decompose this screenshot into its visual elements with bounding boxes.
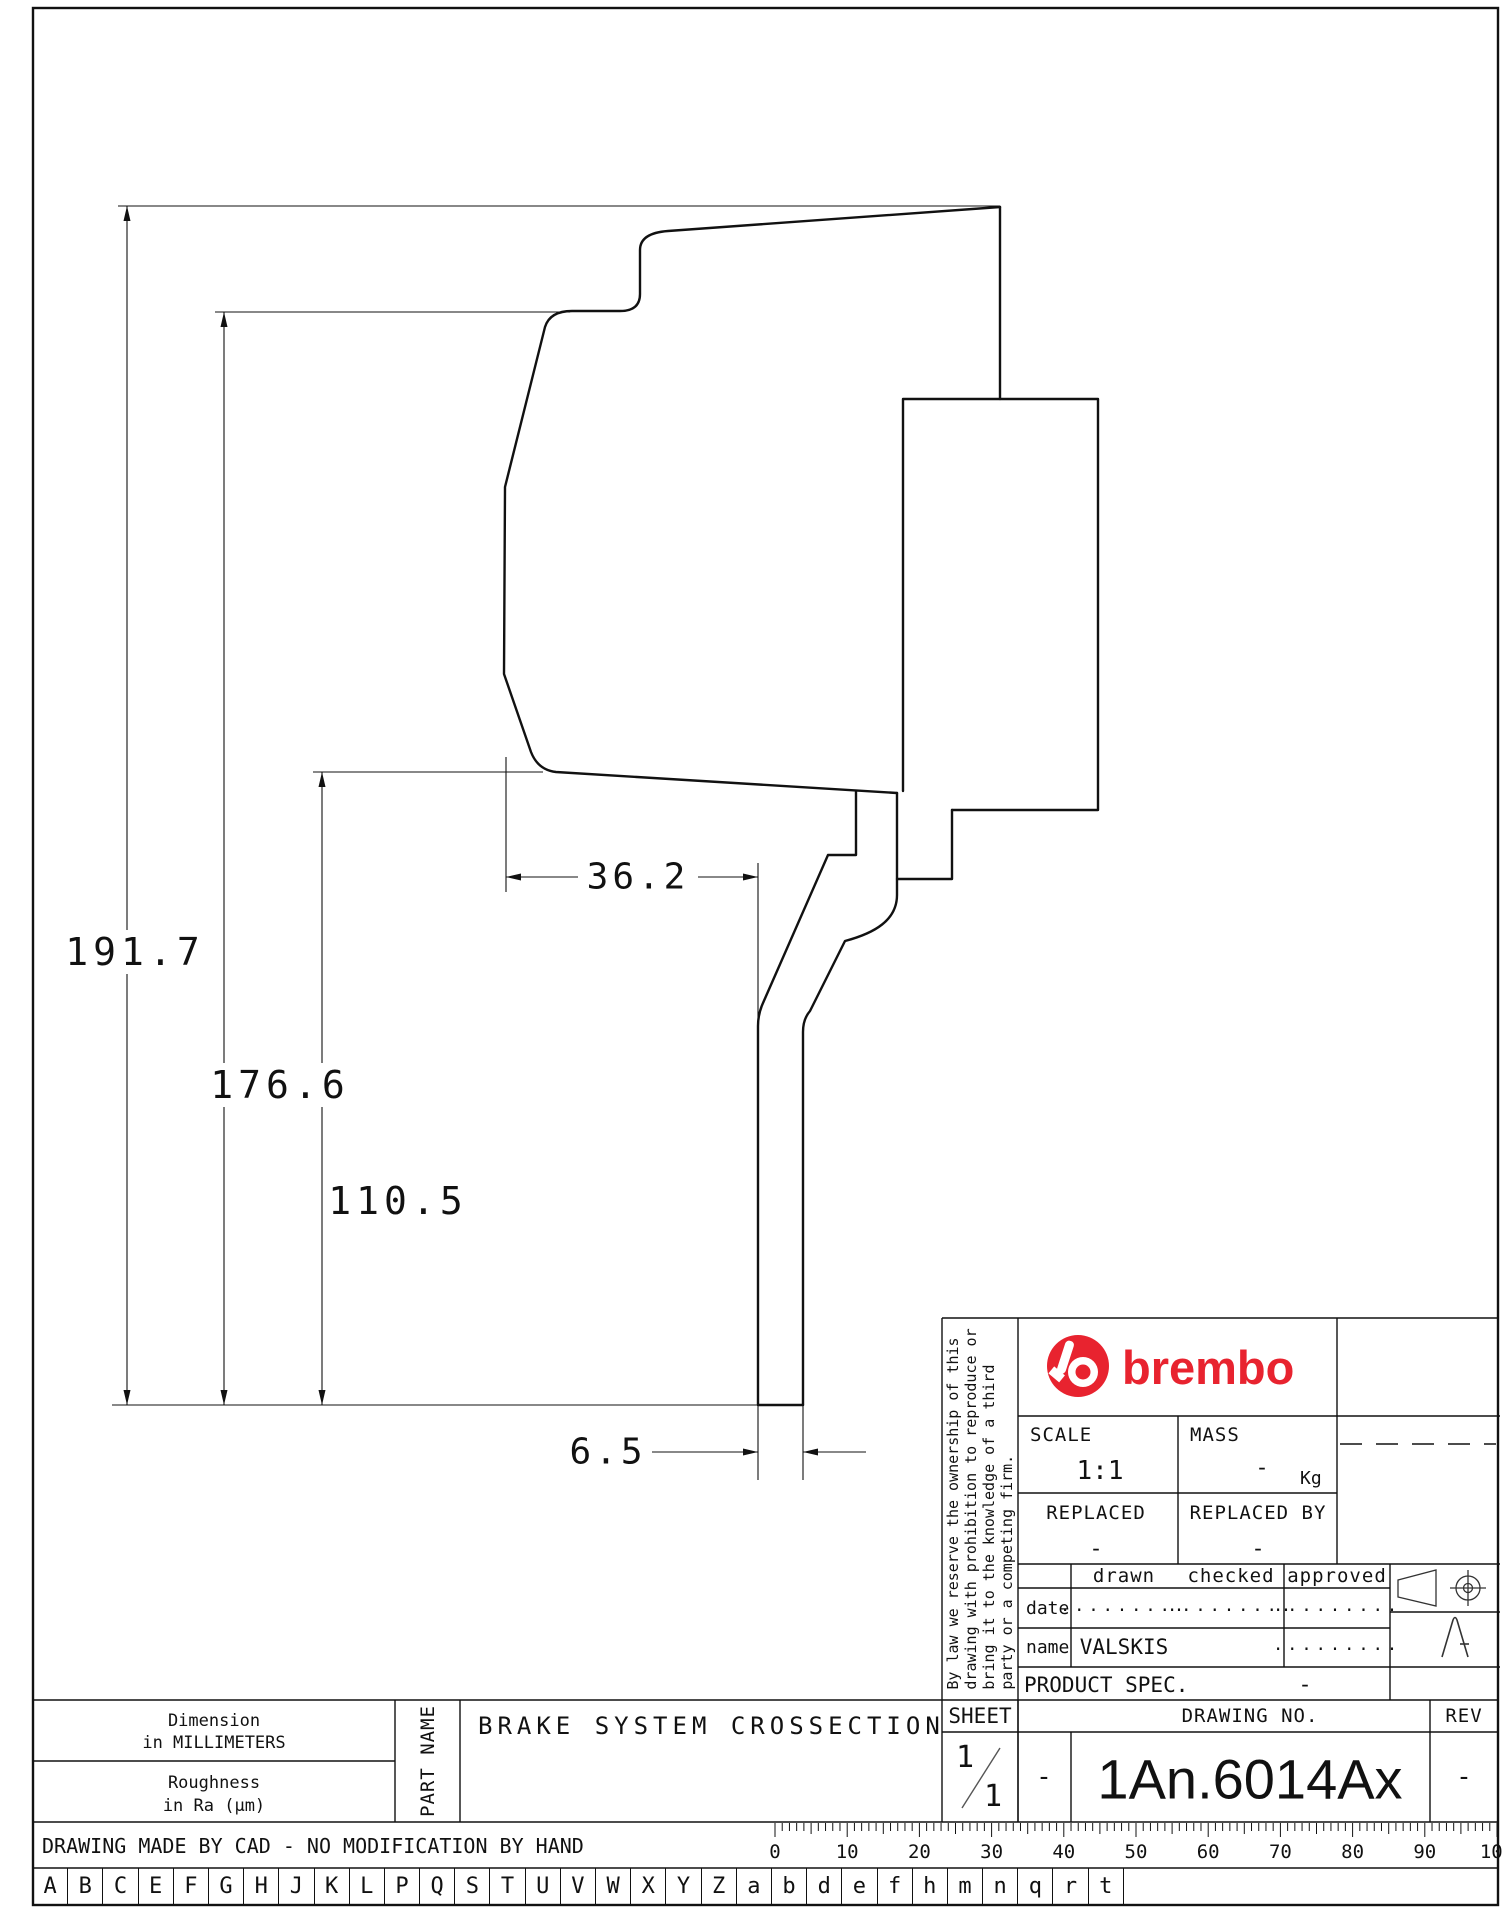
revision-letter-cell: e [842,1868,877,1905]
cad-note: DRAWING MADE BY CAD - NO MODIFICATION BY… [42,1834,584,1858]
drawing-sheet: 191.7 176.6 110.5 36.2 6.5 brembo SCALE … [0,0,1504,1920]
revision-letter-cell: m [948,1868,983,1905]
revision-letter-cell: h [913,1868,948,1905]
revision-letter-cell: Z [702,1868,737,1905]
sheet-number: 1 1 [948,1738,1012,1816]
name-approved-value: ......... [1273,1635,1401,1655]
revision-letter-cell: f [878,1868,913,1905]
revision-letter-cell: Q [420,1868,455,1905]
revision-letter-cell: Y [666,1868,701,1905]
ruler-number: 80 [1341,1841,1364,1863]
revision-letter-cell: b [772,1868,807,1905]
revision-letter-cell: X [631,1868,666,1905]
ruler-number: 60 [1197,1841,1220,1863]
revision-letter-cell: J [279,1868,314,1905]
ruler-number: 10 [836,1841,859,1863]
drawing-canvas [0,0,1504,1920]
replaced-by-value: - [1251,1537,1264,1562]
scale-label: SCALE [1030,1424,1092,1446]
dimension-annotations [112,206,1000,1480]
drawing-no-label: DRAWING NO. [1182,1705,1319,1727]
ruler-number: 90 [1413,1841,1436,1863]
legal-notice-line: drawing with prohibition to reproduce or [962,1328,980,1689]
rev-value: - [1456,1762,1472,1792]
mass-value: - [1255,1456,1268,1481]
revision-letter-cell: K [315,1868,350,1905]
dim-label-overall-height: 191.7 [61,930,208,974]
col-header-checked: checked [1187,1565,1274,1587]
revision-letter-cell: n [983,1868,1018,1905]
ruler-number: 100 [1480,1841,1504,1863]
revision-letter-cell: U [526,1868,561,1905]
revision-letter-cell: C [103,1868,138,1905]
ruler-number: 70 [1269,1841,1292,1863]
mass-unit: Kg [1300,1468,1322,1489]
projection-symbol [1398,1570,1486,1606]
col-header-drawn: drawn [1093,1565,1155,1587]
part-name-label: PART NAME [417,1705,439,1817]
part-title: BRAKE SYSTEM CROSSECTION [478,1712,945,1740]
replaced-label: REPLACED [1046,1502,1146,1524]
revision-letter-cell: W [596,1868,631,1905]
revision-letter-cell: A [33,1868,68,1905]
date-approved-value: ......... [1273,1596,1401,1616]
dim-label-bell-width: 36.2 [584,857,693,898]
product-spec-label: PRODUCT SPEC. [1024,1673,1188,1697]
ruler-ticks [775,1823,1497,1837]
roughness-note-line1: Roughness [168,1773,260,1793]
revision-letter-cell: L [350,1868,385,1905]
dim-label-shaft-thickness: 6.5 [566,1432,649,1473]
revision-letter-cell: a [737,1868,772,1905]
revision-letter-cell: d [807,1868,842,1905]
revision-letter-cell: r [1053,1868,1088,1905]
ruler-number: 0 [769,1841,780,1863]
roughness-note-line2: in Ra (µm) [163,1796,265,1816]
legal-notice-line: By law we reserve the ownership of this [944,1328,962,1689]
dim-label-mid-height: 176.6 [206,1063,353,1107]
name-drawn-value: VALSKIS [1080,1635,1169,1659]
datum-a-symbol [1442,1618,1469,1658]
dimension-note-line1: Dimension [168,1711,260,1731]
rev-label: REV [1445,1705,1482,1727]
revision-letter-cell: P [385,1868,420,1905]
row-label-name: name [1026,1637,1069,1658]
part-profile [504,207,1098,1405]
legal-notice: By law we reserve the ownership of thisd… [942,1318,1018,1700]
sheet-num: 1 [956,1740,974,1775]
revision-letter-cell: B [68,1868,103,1905]
dimension-note-line2: in MILLIMETERS [142,1733,285,1753]
dim-label-inner-height: 110.5 [324,1179,471,1223]
product-spec-value: - [1298,1673,1311,1698]
ruler-number: 40 [1052,1841,1075,1863]
sheet-den: 1 [984,1779,1002,1814]
revision-letters-row: ABCEFGHJKLPQSTUVWXYZabdefhmnqrt [33,1868,1498,1905]
revision-letter-cell: S [455,1868,490,1905]
ruler-number: 20 [908,1841,931,1863]
revision-letter-cell: V [561,1868,596,1905]
replaced-value: - [1089,1537,1102,1562]
brembo-logo-icon [1047,1335,1109,1397]
dimension-arrowheads [124,206,819,1456]
replaced-by-label: REPLACED BY [1190,1502,1327,1524]
ruler-number: 30 [980,1841,1003,1863]
revision-letter-cell: H [244,1868,279,1905]
revision-letter-filler [1124,1868,1498,1905]
ruler-number: 50 [1125,1841,1148,1863]
revision-letter-cell: G [209,1868,244,1905]
legal-notice-line: party or a competing firm. [998,1328,1016,1689]
revision-letter-cell: q [1018,1868,1053,1905]
revision-letter-cell: T [490,1868,525,1905]
brembo-wordmark: brembo [1122,1340,1294,1395]
col-header-approved: approved [1287,1565,1387,1587]
revision-letter-cell: t [1089,1868,1124,1905]
sheet-label: SHEET [948,1704,1011,1728]
drawing-number: 1An.6014Ax [1097,1747,1402,1812]
sheet-dash: - [1036,1762,1052,1792]
page-border [33,8,1498,1905]
legal-notice-line: bring it to the knowledge of a third [980,1328,998,1689]
mass-label: MASS [1190,1424,1240,1446]
revision-letter-cell: F [174,1868,209,1905]
revision-letter-cell: E [139,1868,174,1905]
scale-value: 1:1 [1077,1456,1124,1486]
